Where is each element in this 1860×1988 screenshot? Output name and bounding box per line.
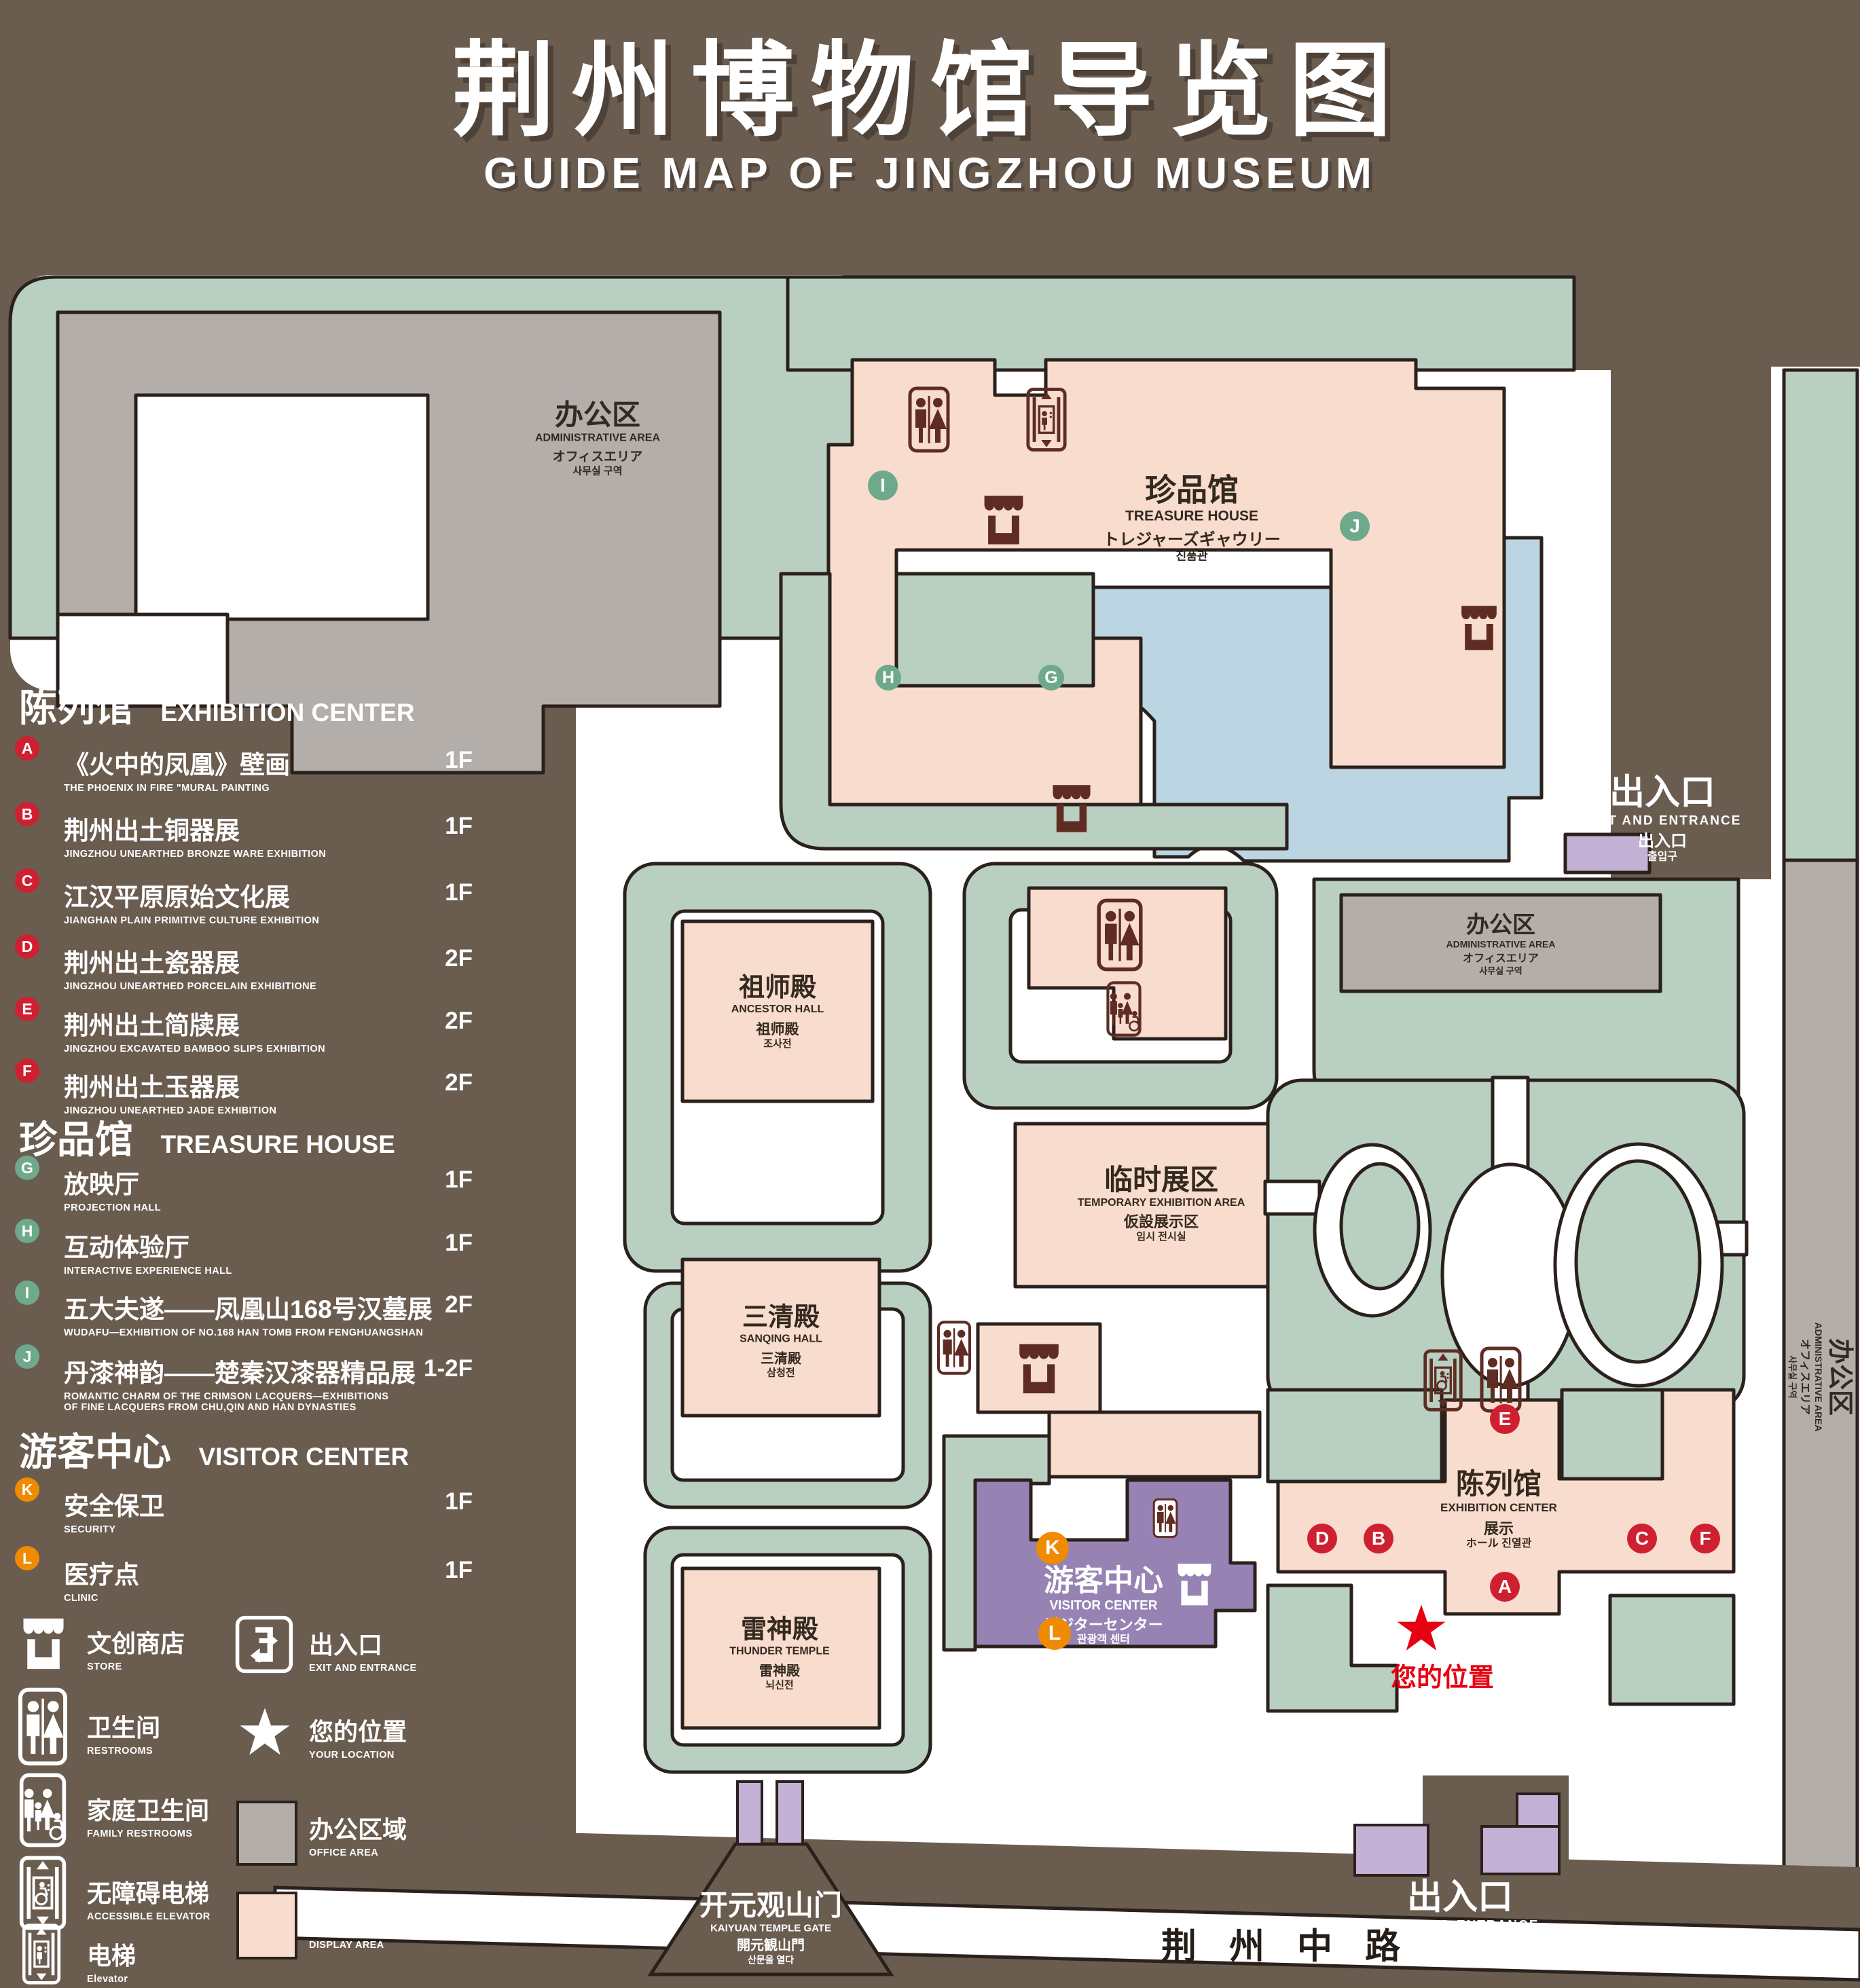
legend-zh: 丹漆神韵——楚秦汉漆器精品展 <box>64 1352 473 1389</box>
legend-accessible-label: 无障碍电梯 ACCESSIBLE ELEVATOR <box>87 1874 211 1922</box>
legend-exit-label: 出入口 EXIT AND ENTRANCE <box>309 1625 417 1674</box>
legend-badge-b: B <box>15 802 39 826</box>
temporary-exhibition-label: 临时展区 TEMPORARY EXHIBITION AREA 仮設展示区 임시 … <box>1078 1163 1245 1243</box>
legend-badge-a: A <box>15 736 39 760</box>
legend-badge-h: H <box>15 1219 39 1243</box>
legend-zh: 荆州出土玉器展 <box>64 1067 473 1103</box>
label-line: SANQING HALL <box>740 1333 822 1346</box>
legend-restrooms-label: 卫生间 RESTROOMS <box>87 1708 160 1756</box>
legend-en: FAMILY RESTROOMS <box>87 1828 209 1839</box>
legend-floor: 1-2F <box>424 1355 473 1382</box>
legend-section-visitor: 游客中心 VISITOR CENTER <box>19 1422 409 1477</box>
exh-green-ne <box>1562 1390 1662 1479</box>
legend-badge-d: D <box>15 934 39 959</box>
legend-badge-i: I <box>15 1281 39 1305</box>
legend-floor: 1F <box>445 1557 473 1584</box>
legend-section-exhibition: 陈列馆 EXHIBITION CENTER <box>19 678 415 733</box>
legend-badge-k: K <box>15 1477 39 1502</box>
green-spacer <box>896 574 1093 686</box>
your-location-star-icon <box>239 1707 291 1759</box>
exh-green-se <box>1610 1596 1734 1704</box>
label-line: 办公区 <box>1446 912 1556 939</box>
s-exit-building-east-b <box>1482 1826 1559 1874</box>
sanqing-hall-label: 三清殿 SANQING HALL 三清殿 삼청전 <box>740 1303 822 1380</box>
family-restrooms-icon <box>16 1772 69 1848</box>
restrooms-icon <box>1154 1499 1177 1536</box>
legend-zh: 荆州出土简牍展 <box>64 1005 473 1042</box>
elevator-icon <box>1028 389 1065 449</box>
map-badge-g: G <box>1038 665 1064 691</box>
exhibition-center-label: 陈列馆 EXHIBITION CENTER 展示 ホール 진열관 <box>1440 1467 1557 1550</box>
legend-zh: 互动体验厅 <box>64 1227 473 1264</box>
section-title-en: VISITOR CENTER <box>198 1443 409 1471</box>
legend-floor: 2F <box>445 1069 473 1097</box>
legend-en: PROJECTION HALL <box>64 1202 473 1213</box>
legend-floor: 1F <box>445 879 473 906</box>
legend-family-label: 家庭卫生间 FAMILY RESTROOMS <box>87 1791 209 1839</box>
garden-path-top <box>1493 1078 1528 1173</box>
label-line: 开元观山门 <box>699 1888 842 1922</box>
exh-green-nw <box>1268 1390 1442 1481</box>
treasure-house-label: 珍品馆 TREASURE HOUSE トレジャーズギャウリー 진품관 <box>1103 471 1281 563</box>
label-line: 珍品馆 <box>1103 471 1281 508</box>
map-badge-c: C <box>1627 1524 1657 1553</box>
label-line: 办公区 <box>535 399 660 432</box>
garden-island-w <box>1341 1164 1419 1289</box>
label-line: THUNDER TEMPLE <box>729 1645 830 1658</box>
label-line: 三清殿 <box>740 1303 822 1333</box>
legend-item-i: I 五大夫遂——凤凰山168号汉墓展 WUDAFU—EXHIBITION OF … <box>19 1289 473 1338</box>
legend-zh: 您的位置 <box>309 1712 407 1748</box>
label-line: TREASURE HOUSE <box>1103 509 1281 526</box>
label-line: ADMINISTRATIVE AREA <box>535 432 660 445</box>
label-line: 办公区 <box>1824 1323 1855 1432</box>
legend-item-b: B 荆州出土铜器展 JINGZHOU UNEARTHED BRONZE WARE… <box>19 810 473 860</box>
label-line: VISITOR CENTER <box>1044 1598 1163 1613</box>
legend-en: STORE <box>87 1661 185 1672</box>
legend-en: EXIT AND ENTRANCE <box>309 1663 417 1674</box>
store-icon <box>14 1616 73 1670</box>
legend-floor: 1F <box>445 747 473 774</box>
legend-en: JINGZHOU UNEARTHED BRONZE WARE EXHIBITIO… <box>64 849 473 860</box>
office-area-swatch <box>236 1801 297 1866</box>
legend-zh: 无障碍电梯 <box>87 1874 211 1909</box>
legend-display-label: 展示区域 DISPLAY AREA <box>309 1902 407 1951</box>
legend-section-treasure: 珍品馆 TREASURE HOUSE <box>19 1109 395 1164</box>
section-title-en: TREASURE HOUSE <box>160 1130 395 1158</box>
legend-en: JINGZHOU UNEARTHED PORCELAIN EXHIBITIONE <box>64 981 473 992</box>
label-line: 開元観山門 <box>699 1938 842 1955</box>
label-line: 뇌신전 <box>729 1680 830 1692</box>
section-title-en: EXHIBITION CENTER <box>160 699 414 726</box>
gate-pillar-west <box>737 1782 762 1844</box>
legend-item-d: D 荆州出土瓷器展 JINGZHOU UNEARTHED PORCELAIN E… <box>19 942 473 992</box>
label-line: 陈列馆 <box>1440 1467 1557 1501</box>
label-line: 조사전 <box>731 1038 824 1050</box>
label-line: 游客中心 <box>1044 1563 1163 1598</box>
your-location-label: 您的位置 <box>1391 1663 1494 1694</box>
label-line: 雷神殿 <box>729 1663 830 1680</box>
map-badge-a: A <box>1490 1572 1520 1602</box>
accessible-elevator-icon <box>16 1855 69 1931</box>
legend-item-a: A 《火中的凤凰》壁画 THE PHOENIX IN FIRE "MURAL P… <box>19 744 473 794</box>
legend-en: SECURITY <box>64 1524 473 1535</box>
legend-en: Elevator <box>87 1974 136 1985</box>
legend-badge-c: C <box>15 868 39 893</box>
legend-badge-g: G <box>15 1156 39 1180</box>
legend-en: DISPLAY AREA <box>309 1940 407 1951</box>
label-line: 사무실 구역 <box>1787 1323 1797 1432</box>
admin-nw-label: 办公区 ADMINISTRATIVE AREA オフィスエリア 사무실 구역 <box>535 399 660 478</box>
label-line: 出入口 <box>1381 1877 1539 1919</box>
s-exit-building-west <box>1355 1825 1428 1875</box>
garden-island-e <box>1576 1161 1700 1362</box>
label-line: 雷神殿 <box>729 1615 830 1646</box>
guide-map-poster: 荆州博物馆导览图 GUIDE MAP OF JINGZHOU MUSEUM <box>0 0 1860 1988</box>
legend-en2: OF FINE LACQUERS FROM CHU,QIN AND HAN DY… <box>64 1402 473 1413</box>
legend-badge-l: L <box>15 1546 39 1570</box>
legend-zh: 《火中的凤凰》壁画 <box>64 744 473 781</box>
legend-item-g: G 放映厅 PROJECTION HALL 1F <box>19 1164 473 1213</box>
gate-pillar-east <box>777 1782 803 1844</box>
label-line: 사무실 구역 <box>535 466 660 478</box>
label-line: 展示 <box>1440 1520 1557 1537</box>
legend-zh: 出入口 <box>309 1625 417 1661</box>
label-line: KAIYUAN TEMPLE GATE <box>699 1922 842 1934</box>
map-badge-j: J <box>1340 511 1370 541</box>
display-area-swatch <box>236 1892 297 1959</box>
campus-green-ne-strip <box>1784 370 1857 860</box>
label-line: オフィスエリア <box>1798 1323 1810 1432</box>
label-line: 임시 전시실 <box>1078 1231 1245 1243</box>
map-badge-h: H <box>875 665 901 691</box>
legend-zh: 卫生间 <box>87 1708 160 1744</box>
legend-en: OFFICE AREA <box>309 1847 407 1858</box>
ancestor-hall-label: 祖师殿 ANCESTOR HALL 祖师殿 조사전 <box>731 973 824 1050</box>
legend-floor: 2F <box>445 1291 473 1319</box>
elevator-icon <box>18 1923 65 1985</box>
legend-office-label: 办公区域 OFFICE AREA <box>309 1810 407 1858</box>
section-title-zh: 珍品馆 <box>19 1118 133 1161</box>
legend-badge-j: J <box>15 1344 39 1369</box>
label-line: 临时展区 <box>1078 1163 1245 1197</box>
legend-floor: 2F <box>445 945 473 972</box>
restrooms-icon <box>938 1322 970 1373</box>
map-badge-i: I <box>868 471 898 500</box>
label-line: オフィスエリア <box>535 450 660 465</box>
legend-en: ACCESSIBLE ELEVATOR <box>87 1911 211 1922</box>
section-title-zh: 陈列馆 <box>19 686 133 729</box>
legend-zh: 家庭卫生间 <box>87 1791 209 1826</box>
map-badge-f: F <box>1690 1524 1720 1553</box>
legend-item-j: J 丹漆神韵——楚秦汉漆器精品展 ROMANTIC CHARM OF THE C… <box>19 1352 473 1413</box>
kaiyuan-gate-label: 开元观山门 KAIYUAN TEMPLE GATE 開元観山門 산문을 열다 <box>699 1888 842 1965</box>
legend-item-c: C 江汉平原原始文化展 JIANGHAN PLAIN PRIMITIVE CUL… <box>19 877 473 926</box>
label-line: ADMINISTRATIVE AREA <box>1812 1323 1824 1432</box>
s-exit-building-east-a <box>1517 1794 1559 1828</box>
legend-item-k: K 安全保卫 SECURITY 1F <box>19 1486 473 1535</box>
legend-zh: 办公区域 <box>309 1810 407 1845</box>
legend-en: INTERACTIVE EXPERIENCE HALL <box>64 1266 473 1276</box>
pink-strip-above-vc <box>1049 1412 1260 1477</box>
legend-floor: 1F <box>445 1488 473 1515</box>
label-line: EXIT AND ENTRANCE <box>1584 814 1742 829</box>
legend-en: JIANGHAN PLAIN PRIMITIVE CULTURE EXHIBIT… <box>64 915 473 926</box>
legend-en: YOUR LOCATION <box>309 1750 407 1761</box>
legend-badge-f: F <box>15 1059 39 1083</box>
restrooms-icon <box>16 1687 69 1767</box>
section-title-zh: 游客中心 <box>19 1431 171 1473</box>
label-line: 진품관 <box>1103 550 1281 564</box>
legend-zh: 江汉平原原始文化展 <box>64 877 473 913</box>
legend-item-l: L 医疗点 CLINIC 1F <box>19 1554 473 1604</box>
label-line: オフィスエリア <box>1446 953 1556 965</box>
label-line: ホール 진열관 <box>1440 1537 1557 1550</box>
legend-zh: 展示区域 <box>309 1902 407 1938</box>
legend-en: JINGZHOU EXCAVATED BAMBOO SLIPS EXHIBITI… <box>64 1044 473 1054</box>
road-name: 荆州中路 <box>1161 1918 1433 1969</box>
label-line: 사무실 구역 <box>1446 965 1556 976</box>
legend-store-label: 文创商店 STORE <box>87 1624 185 1672</box>
legend-zh: 放映厅 <box>64 1164 473 1200</box>
legend-en: ROMANTIC CHARM OF THE CRIMSON LACQUERS—E… <box>64 1391 473 1402</box>
legend-zh: 安全保卫 <box>64 1486 473 1522</box>
legend-en: WUDAFU—EXHIBITION OF NO.168 HAN TOMB FRO… <box>64 1327 473 1338</box>
accessible-elevator-icon <box>1425 1351 1461 1410</box>
label-line: TEMPORARY EXHIBITION AREA <box>1078 1197 1245 1210</box>
legend-floor: 1F <box>445 1230 473 1257</box>
admin-e-label: 办公区 ADMINISTRATIVE AREA オフィスエリア 사무실 구역 <box>1446 912 1556 976</box>
exit-icon <box>234 1615 294 1674</box>
label-line: 出入口 <box>1584 773 1742 814</box>
label-line: 三清殿 <box>740 1351 822 1367</box>
label-line: 您的位置 <box>1391 1663 1494 1694</box>
label-line: 出入口 <box>1584 832 1742 851</box>
legend-elevator-label: 电梯 Elevator <box>87 1936 136 1985</box>
label-line: 삼청전 <box>740 1367 822 1380</box>
label-line: 산문을 열다 <box>699 1954 842 1966</box>
exit-ne-label: 出入口 EXIT AND ENTRANCE 出入口 출입구 <box>1584 773 1742 864</box>
admin-se-label: 办公区 ADMINISTRATIVE AREA オフィスエリア 사무실 구역 <box>1787 1323 1855 1432</box>
legend-floor: 1F <box>445 1166 473 1194</box>
store-building <box>978 1324 1100 1412</box>
legend-item-h: H 互动体验厅 INTERACTIVE EXPERIENCE HALL 1F <box>19 1227 473 1276</box>
legend-en: RESTROOMS <box>87 1746 160 1756</box>
legend-floor: 2F <box>445 1008 473 1035</box>
label-line: 출입구 <box>1584 851 1742 864</box>
label-line: トレジャーズギャウリー <box>1103 530 1281 549</box>
map-badge-k: K <box>1036 1532 1069 1564</box>
map-badge-l: L <box>1038 1617 1071 1650</box>
label-line: 祖师殿 <box>731 973 824 1004</box>
legend-zh: 电梯 <box>87 1936 136 1972</box>
map-badge-d: D <box>1307 1524 1337 1553</box>
legend-zh: 荆州出土瓷器展 <box>64 942 473 979</box>
map-badge-b: B <box>1364 1524 1393 1553</box>
legend-item-e: E 荆州出土简牍展 JINGZHOU EXCAVATED BAMBOO SLIP… <box>19 1005 473 1054</box>
admin-nw-courtyard <box>136 395 428 619</box>
legend-zh: 五大夫遂——凤凰山168号汉墓展 <box>64 1289 473 1325</box>
legend-badge-e: E <box>15 997 39 1021</box>
label-line: ADMINISTRATIVE AREA <box>1446 939 1556 951</box>
legend-en: THE PHOENIX IN FIRE "MURAL PAINTING <box>64 783 473 794</box>
campus-green-top-strip <box>788 277 1574 370</box>
legend-location-label: 您的位置 YOUR LOCATION <box>309 1712 407 1761</box>
legend-en: CLINIC <box>64 1593 473 1604</box>
label-line: 祖师殿 <box>731 1022 824 1039</box>
label-line: ANCESTOR HALL <box>731 1004 824 1016</box>
map-badge-e: E <box>1490 1404 1520 1434</box>
legend-floor: 1F <box>445 813 473 840</box>
legend-zh: 荆州出土铜器展 <box>64 810 473 847</box>
thunder-temple-label: 雷神殿 THUNDER TEMPLE 雷神殿 뇌신전 <box>729 1615 830 1692</box>
label-line: 仮設展示区 <box>1078 1213 1245 1231</box>
label-line: EXHIBITION CENTER <box>1440 1501 1557 1514</box>
garden-path-left <box>1265 1181 1319 1214</box>
legend-zh: 文创商店 <box>87 1624 185 1659</box>
legend-zh: 医疗点 <box>64 1554 473 1591</box>
museum-map <box>0 0 1860 1988</box>
